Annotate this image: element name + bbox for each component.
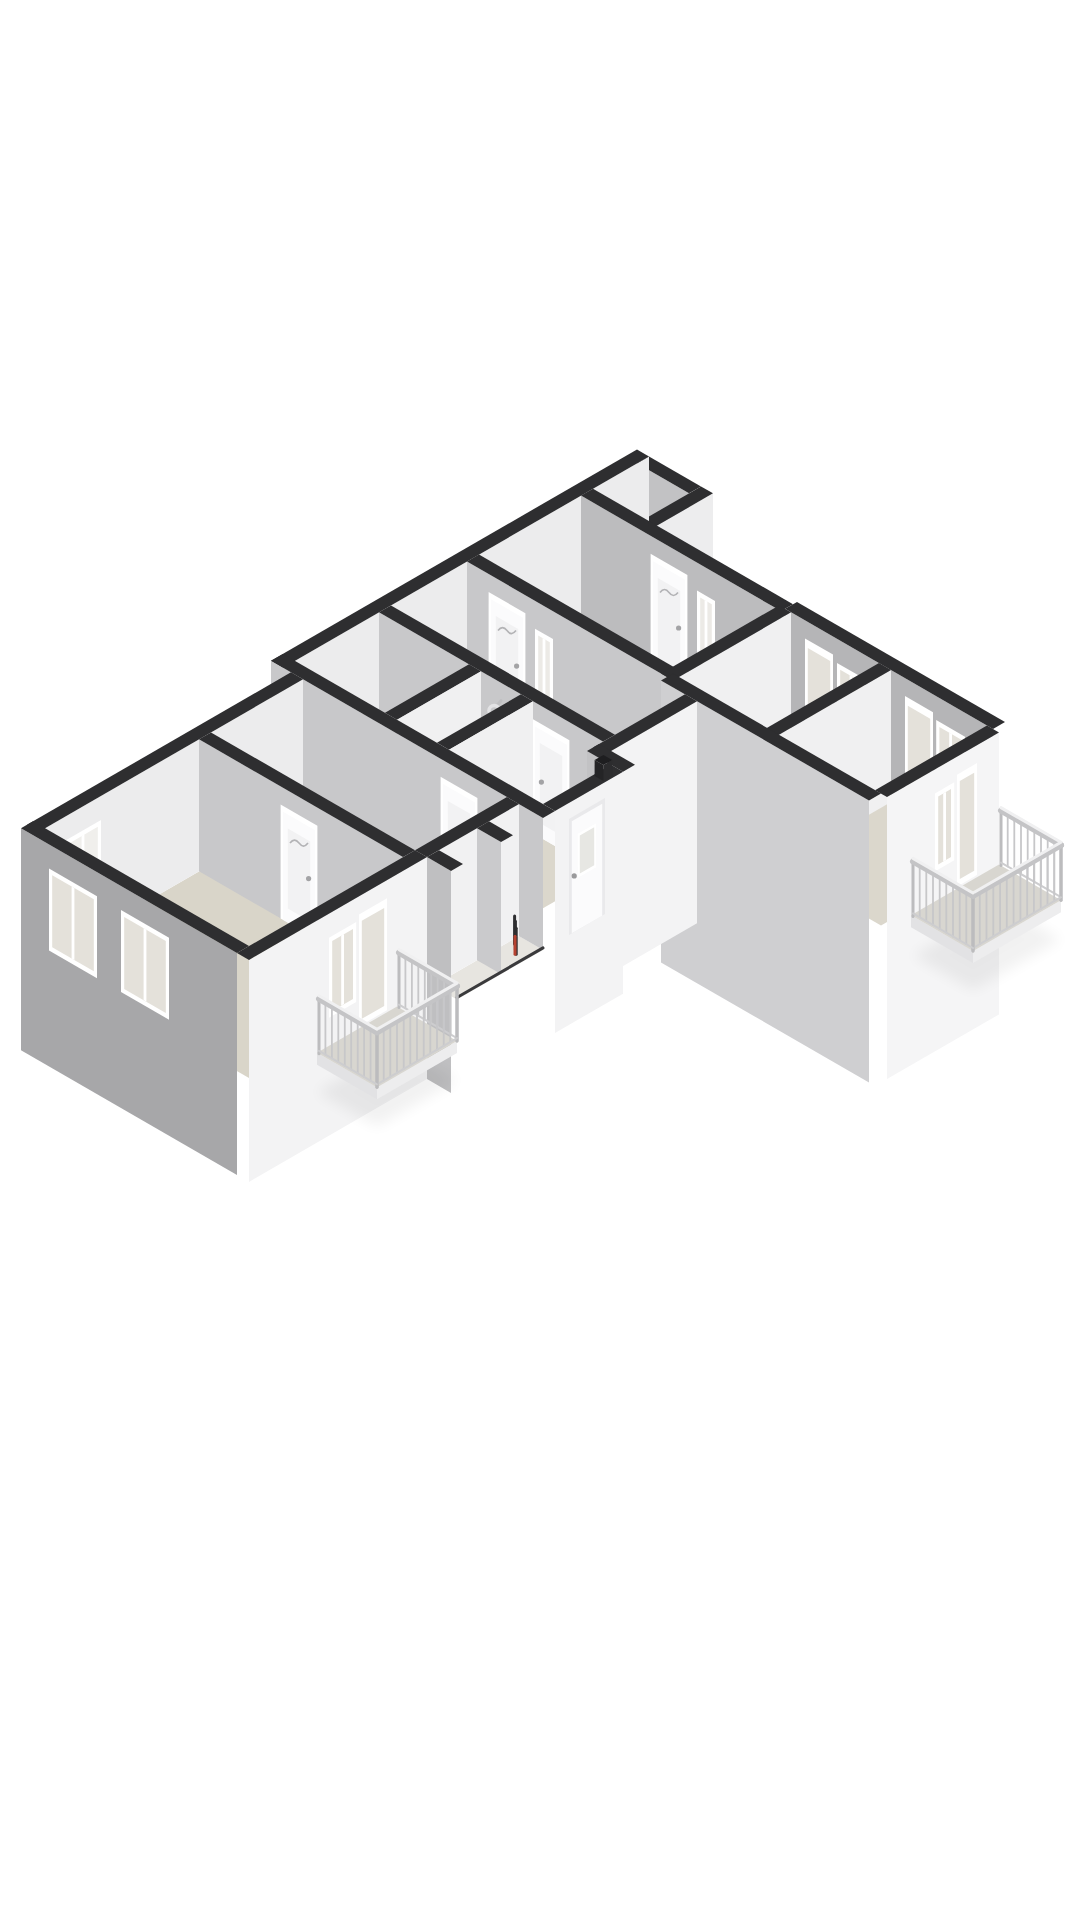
balcony-door-pane xyxy=(960,773,974,879)
window-mullion xyxy=(341,934,344,1006)
door-handle xyxy=(539,780,544,785)
front-door-handle xyxy=(572,873,577,878)
door-handle xyxy=(514,664,519,669)
window-mullion xyxy=(144,928,147,1002)
window-mullion xyxy=(543,638,546,700)
window-mullion xyxy=(72,887,75,961)
door-handle xyxy=(676,625,681,630)
living-balcony-door-pane xyxy=(362,908,384,1019)
window-mullion xyxy=(943,792,946,862)
cells-divider-face xyxy=(477,828,501,974)
floor-plan-canvas xyxy=(0,0,1080,1920)
door-handle xyxy=(306,876,311,881)
floor-plan-image xyxy=(0,0,1080,1920)
